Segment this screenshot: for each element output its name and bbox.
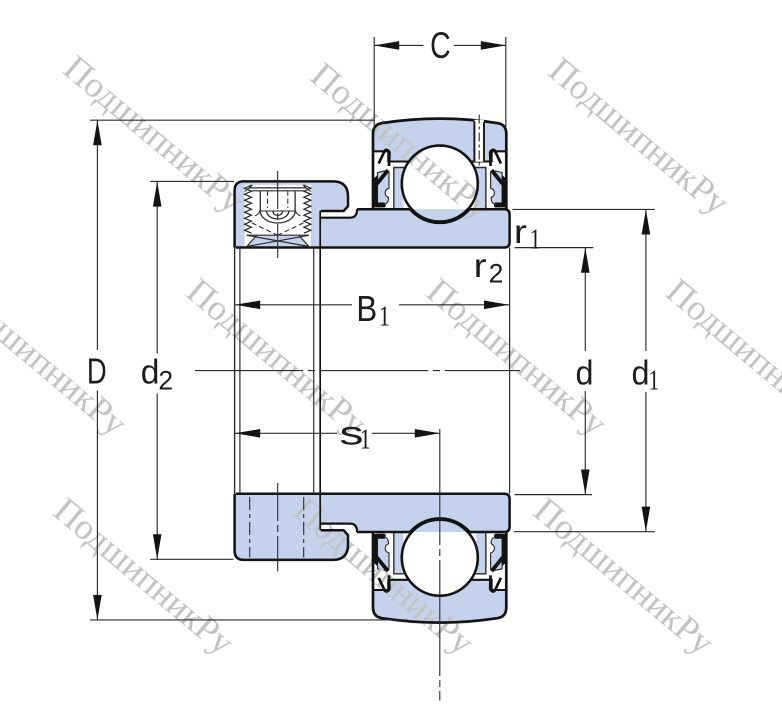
svg-text:1: 1 xyxy=(530,225,541,256)
svg-text:2: 2 xyxy=(158,365,173,395)
svg-text:C: C xyxy=(430,24,451,66)
svg-text:1: 1 xyxy=(379,302,390,333)
svg-text:d: d xyxy=(141,354,160,392)
svg-text:2: 2 xyxy=(489,259,504,289)
svg-text:1: 1 xyxy=(648,366,659,397)
svg-text:B: B xyxy=(356,288,377,329)
svg-text:d: d xyxy=(632,354,650,392)
svg-text:r: r xyxy=(514,213,527,251)
svg-text:r: r xyxy=(474,247,487,285)
svg-text:1: 1 xyxy=(360,425,371,456)
svg-text:D: D xyxy=(87,351,107,392)
svg-text:d: d xyxy=(576,354,594,392)
